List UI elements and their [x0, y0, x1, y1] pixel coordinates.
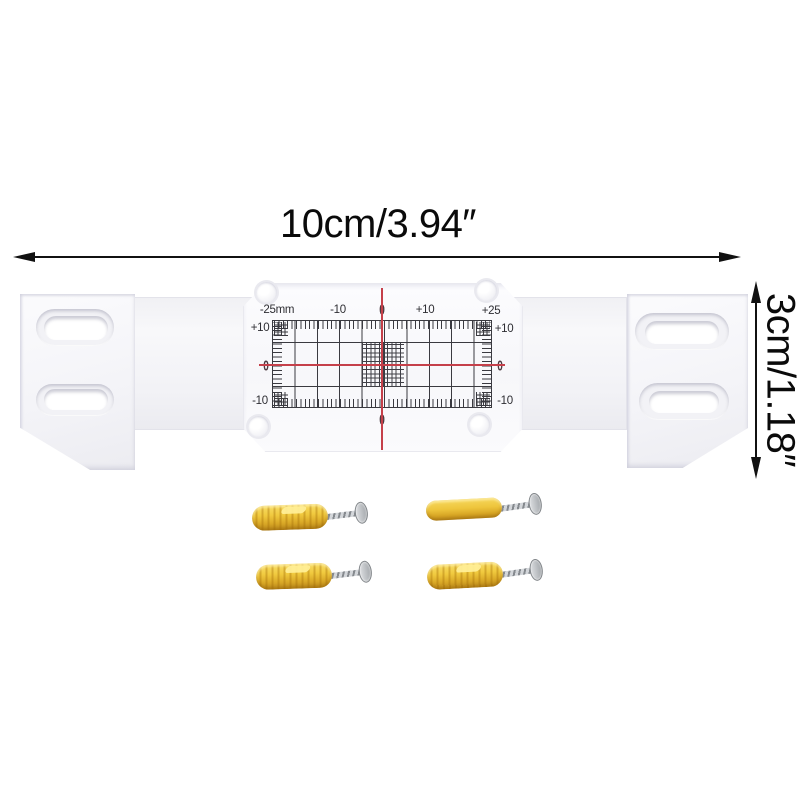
mounting-slot-hole: [44, 316, 108, 340]
wall-anchor: [251, 498, 372, 536]
corner-boss: [256, 282, 277, 303]
mounting-slot-hole: [649, 391, 719, 413]
scale-label: -25mm: [260, 304, 294, 316]
corner-hatch-pattern: [274, 322, 288, 336]
screw-head: [354, 501, 370, 524]
crosshair-vertical-line: [381, 288, 383, 450]
corner-boss: [248, 416, 269, 437]
crosshair-horizontal-line: [259, 364, 505, 366]
screw-head: [528, 558, 544, 582]
right-mounting-bracket: [627, 294, 748, 468]
screw-head: [358, 560, 374, 583]
screw-head: [527, 492, 543, 516]
height-dimension-label: 3cm/1.18″: [758, 293, 800, 467]
corner-boss: [476, 280, 497, 301]
mounting-slot-hole: [645, 321, 719, 344]
width-dimension-label: 10cm/3.94″: [178, 202, 578, 247]
mounting-slot-hole: [44, 389, 108, 410]
corner-hatch-pattern: [476, 322, 490, 336]
wall-anchor: [255, 557, 376, 595]
arrow-left-icon: [13, 252, 35, 262]
left-mounting-bracket: [20, 294, 135, 470]
corner-hatch-pattern: [274, 392, 288, 406]
wall-anchor: [426, 555, 548, 595]
arrow-right-icon: [719, 252, 741, 262]
anchor-plug: [426, 497, 503, 521]
wall-anchor: [425, 489, 547, 529]
product-photo-canvas: 10cm/3.94″ 3cm/1.18″ -25m: [0, 0, 800, 800]
scale-label: -10: [330, 304, 346, 316]
corner-boss: [469, 414, 490, 435]
scale-label: +10: [416, 304, 435, 316]
scale-label: +25: [482, 305, 501, 317]
scale-label: +10: [251, 322, 270, 334]
scale-label: -10: [497, 395, 513, 407]
scale-label: +10: [495, 323, 514, 335]
width-dimension-line: [28, 256, 724, 258]
scale-label: -10: [252, 395, 268, 407]
corner-hatch-pattern: [476, 392, 490, 406]
